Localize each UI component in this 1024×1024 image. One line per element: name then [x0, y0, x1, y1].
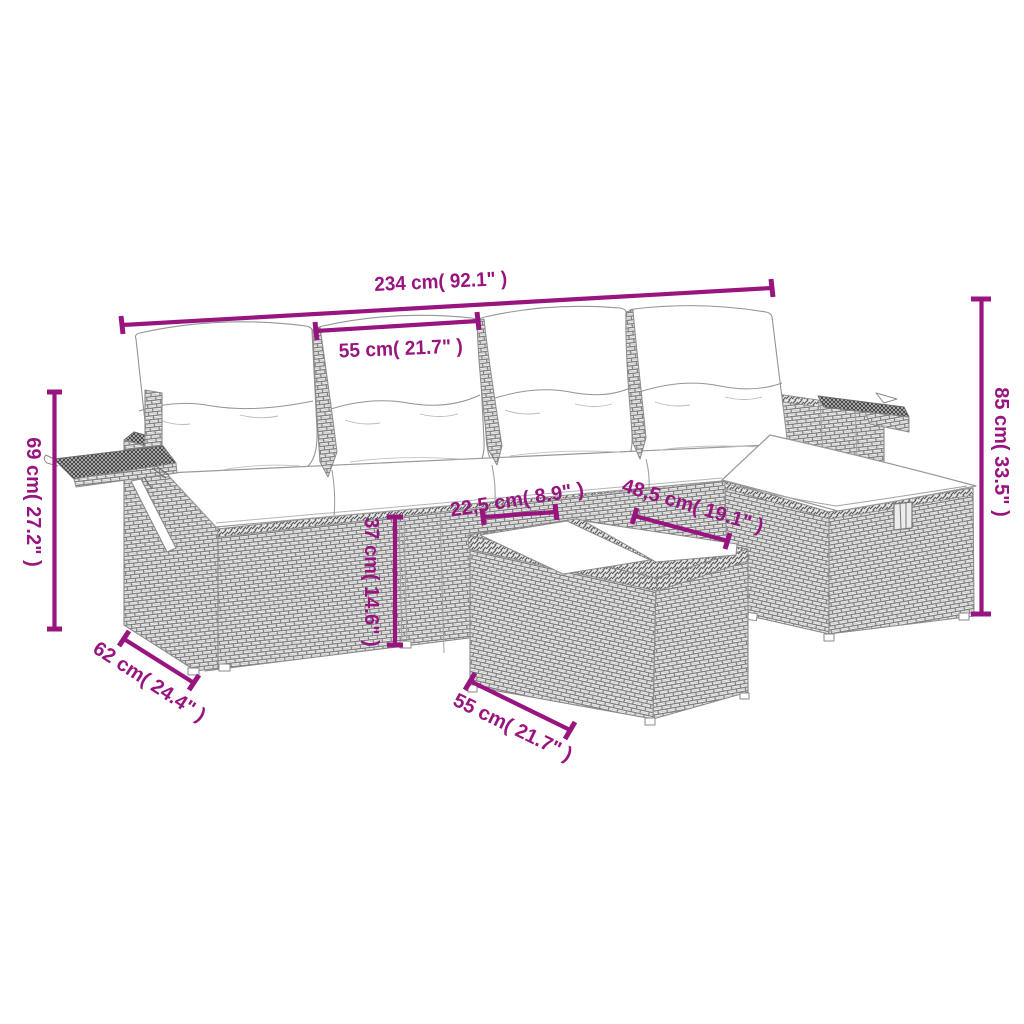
svg-text:69 cm( 27.2" ): 69 cm( 27.2" )	[22, 437, 44, 567]
svg-text:85 cm( 33.5" ): 85 cm( 33.5" )	[990, 387, 1012, 517]
svg-text:37 cm( 14.6" ): 37 cm( 14.6" )	[360, 517, 382, 647]
